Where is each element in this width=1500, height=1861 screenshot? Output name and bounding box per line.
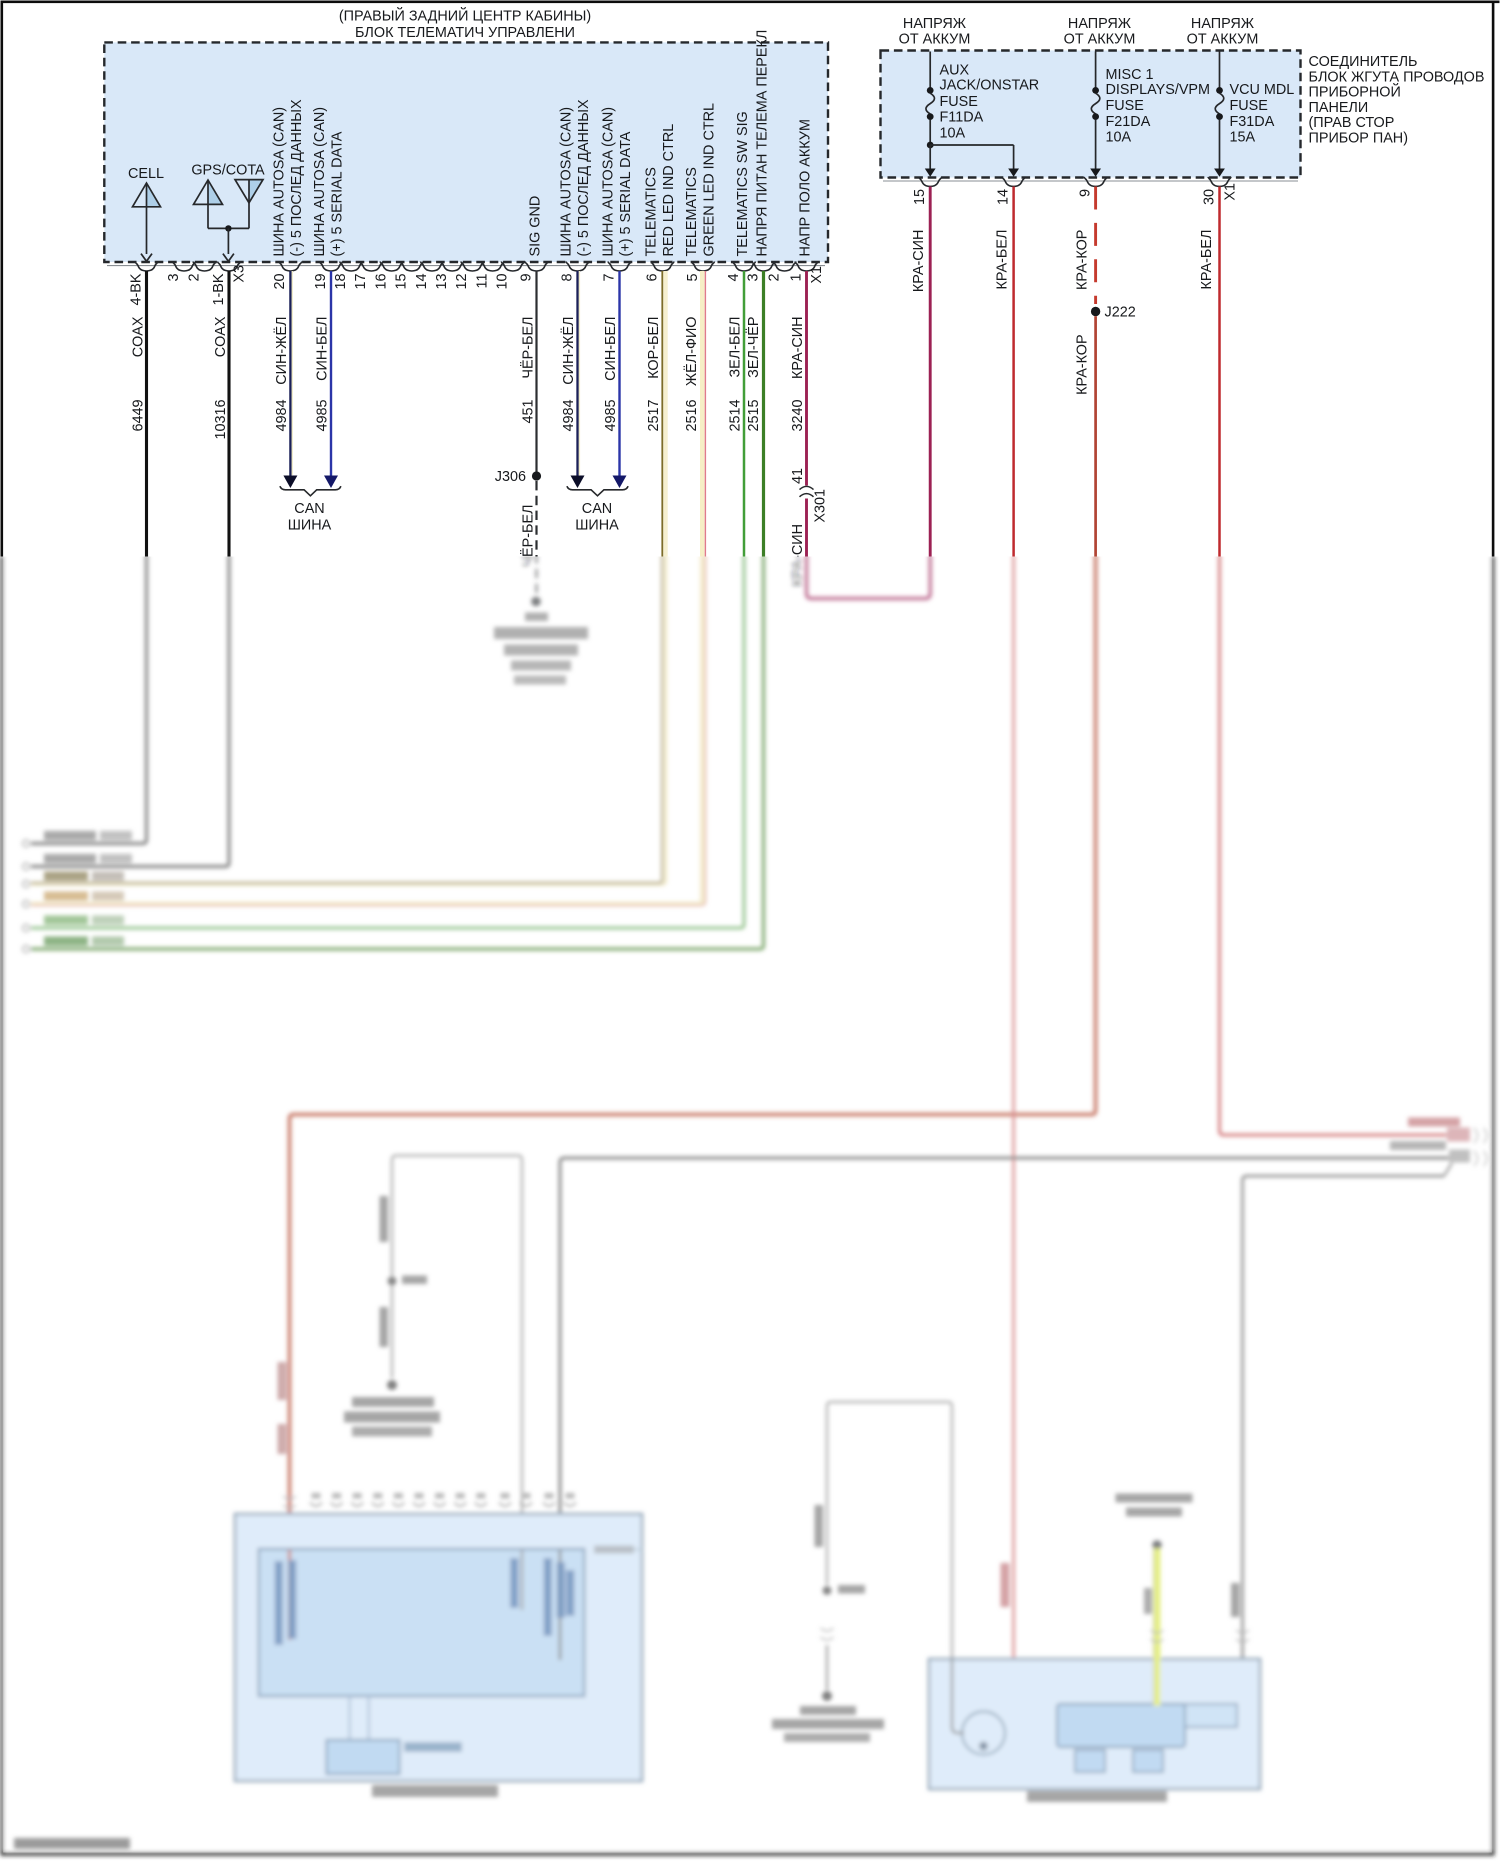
svg-text:(+) 5 SERIAL DATA: (+) 5 SERIAL DATA [618, 131, 634, 256]
svg-text:17: 17 [353, 274, 369, 290]
svg-text:7: 7 [601, 274, 617, 282]
svg-text:X301: X301 [813, 489, 829, 523]
svg-text:16: 16 [373, 274, 389, 290]
svg-text:СИН-ЖЁЛ: СИН-ЖЁЛ [273, 317, 290, 385]
svg-text:4985: 4985 [315, 400, 331, 432]
svg-text:3: 3 [745, 274, 761, 282]
svg-text:НАПР ПОЛО АККУМ: НАПР ПОЛО АККУМ [798, 119, 814, 256]
svg-text:4984: 4984 [561, 400, 577, 432]
svg-text:1-BK: 1-BK [211, 273, 227, 305]
svg-text:FUSE: FUSE [1106, 98, 1144, 114]
svg-text:ШИНА: ШИНА [575, 518, 619, 534]
svg-text:10316: 10316 [213, 400, 229, 440]
svg-text:15A: 15A [1230, 130, 1256, 146]
svg-text:14: 14 [995, 189, 1011, 205]
svg-text:ЗЕЛ-БЕЛ: ЗЕЛ-БЕЛ [728, 317, 744, 378]
svg-text:НАПРЯ ПИТАН ТЕЛЕМА ПЕРЕКЛ: НАПРЯ ПИТАН ТЕЛЕМА ПЕРЕКЛ [755, 30, 771, 257]
svg-text:КРА-КОР: КРА-КОР [1074, 334, 1090, 394]
svg-text:ОТ АККУМ: ОТ АККУМ [899, 31, 971, 47]
svg-text:ЗЕЛ-ЧЁР: ЗЕЛ-ЧЁР [745, 317, 762, 378]
svg-text:(-) 5 ПОСЛЕД ДАННЫХ: (-) 5 ПОСЛЕД ДАННЫХ [576, 99, 592, 256]
svg-text:18: 18 [333, 274, 349, 290]
svg-text:MISC 1: MISC 1 [1106, 67, 1154, 83]
svg-text:TELEMATICS: TELEMATICS [644, 167, 660, 256]
svg-text:X1: X1 [809, 266, 825, 284]
svg-text:(ПРАВЫЙ ЗАДНИЙ ЦЕНТР КАБИНЫ): (ПРАВЫЙ ЗАДНИЙ ЦЕНТР КАБИНЫ) [339, 7, 591, 25]
svg-text:НАПРЯЖ: НАПРЯЖ [903, 16, 967, 32]
svg-text:НАПРЯЖ: НАПРЯЖ [1068, 16, 1132, 32]
svg-text:3240: 3240 [790, 400, 806, 432]
svg-text:ЧЁР-БЕЛ: ЧЁР-БЕЛ [519, 317, 536, 379]
svg-text:451: 451 [520, 400, 536, 424]
svg-text:15: 15 [912, 189, 928, 205]
svg-text:ШИНА AUTOSA (CAN): ШИНА AUTOSA (CAN) [312, 107, 328, 257]
svg-text:CAN: CAN [294, 501, 324, 517]
svg-text:ЖЁЛ-ФИО: ЖЁЛ-ФИО [683, 317, 700, 387]
svg-text:4985: 4985 [603, 400, 619, 432]
svg-text:J222: J222 [1105, 304, 1136, 320]
svg-text:FUSE: FUSE [1230, 98, 1268, 114]
svg-text:(+) 5 SERIAL DATA: (+) 5 SERIAL DATA [330, 131, 346, 256]
svg-text:8: 8 [559, 274, 575, 282]
svg-text:30: 30 [1201, 189, 1217, 205]
svg-text:15: 15 [394, 274, 410, 290]
svg-text:ПРИБОРНОЙ: ПРИБОРНОЙ [1309, 83, 1401, 101]
svg-text:F21DA: F21DA [1106, 114, 1151, 130]
svg-text:4984: 4984 [274, 400, 290, 432]
svg-text:9: 9 [518, 274, 534, 282]
svg-text:FUSE: FUSE [940, 94, 978, 110]
svg-text:2: 2 [186, 274, 202, 282]
svg-text:КРА-СИН: КРА-СИН [790, 317, 806, 380]
svg-text:ПРИБОР ПАН): ПРИБОР ПАН) [1309, 131, 1408, 147]
svg-text:F11DA: F11DA [940, 110, 984, 126]
svg-text:14: 14 [414, 274, 430, 290]
svg-text:COAX: COAX [213, 316, 229, 357]
svg-text:СИН-БЕЛ: СИН-БЕЛ [603, 317, 619, 381]
svg-text:ШИНА: ШИНА [288, 518, 332, 534]
svg-text:GPS/COTA: GPS/COTA [191, 162, 265, 178]
svg-text:DISPLAYS/VPM: DISPLAYS/VPM [1106, 82, 1211, 98]
svg-text:2517: 2517 [646, 400, 662, 432]
svg-text:CAN: CAN [582, 501, 612, 517]
svg-text:CELL: CELL [128, 166, 164, 182]
svg-text:6449: 6449 [130, 400, 146, 432]
svg-text:КРА-КОР: КРА-КОР [1074, 230, 1090, 290]
svg-text:ШИНА AUTOSA (CAN): ШИНА AUTOSA (CAN) [559, 107, 575, 257]
svg-text:БЛОК ЖГУТА ПРОВОДОВ: БЛОК ЖГУТА ПРОВОДОВ [1309, 69, 1485, 85]
svg-text:X1: X1 [1223, 183, 1239, 201]
svg-text:JACK/ONSTAR: JACK/ONSTAR [940, 78, 1040, 94]
svg-text:VCU MDL: VCU MDL [1230, 82, 1295, 98]
svg-text:11: 11 [474, 274, 490, 289]
svg-text:F31DA: F31DA [1230, 114, 1275, 130]
svg-text:КРА-БЕЛ: КРА-БЕЛ [995, 230, 1011, 290]
svg-text:41: 41 [790, 468, 806, 484]
svg-text:СИН-ЖЁЛ: СИН-ЖЁЛ [560, 317, 577, 385]
svg-text:СИН-БЕЛ: СИН-БЕЛ [315, 317, 331, 381]
svg-text:RED LED IND CTRL: RED LED IND CTRL [661, 124, 677, 257]
svg-text:19: 19 [313, 274, 329, 290]
svg-text:4: 4 [726, 274, 742, 282]
svg-text:GREEN LED IND CTRL: GREEN LED IND CTRL [702, 103, 718, 257]
svg-text:СОЕДИНИТЕЛЬ: СОЕДИНИТЕЛЬ [1309, 54, 1418, 70]
svg-text:10A: 10A [940, 125, 966, 141]
svg-text:12: 12 [454, 274, 470, 290]
svg-text:НАПРЯЖ: НАПРЯЖ [1191, 16, 1255, 32]
svg-text:10: 10 [495, 274, 511, 290]
svg-text:9: 9 [1077, 189, 1093, 197]
svg-text:COAX: COAX [130, 316, 146, 357]
svg-text:20: 20 [272, 274, 288, 290]
svg-text:X3: X3 [232, 265, 248, 283]
svg-text:AUX: AUX [940, 63, 970, 79]
svg-text:1: 1 [788, 274, 804, 282]
svg-text:2514: 2514 [728, 400, 744, 432]
svg-text:4-BK: 4-BK [128, 273, 144, 305]
svg-text:ПАНЕЛИ: ПАНЕЛИ [1309, 100, 1369, 116]
svg-text:КРА-СИН: КРА-СИН [911, 230, 927, 293]
svg-text:13: 13 [434, 274, 450, 290]
svg-text:ШИНА AUTOSA (CAN): ШИНА AUTOSA (CAN) [601, 107, 617, 257]
svg-text:2516: 2516 [684, 400, 700, 432]
svg-text:КОР-БЕЛ: КОР-БЕЛ [646, 317, 662, 379]
svg-text:2515: 2515 [746, 400, 762, 432]
svg-text:(ПРАВ СТОР: (ПРАВ СТОР [1309, 115, 1395, 131]
svg-text:3: 3 [166, 274, 182, 282]
svg-text:ОТ АККУМ: ОТ АККУМ [1187, 31, 1259, 47]
svg-text:ШИНА AUTOSA (CAN): ШИНА AUTOSA (CAN) [271, 107, 287, 257]
svg-text:10A: 10A [1106, 130, 1132, 146]
svg-text:SIG GND: SIG GND [528, 196, 544, 257]
svg-text:J306: J306 [495, 469, 526, 485]
svg-text:БЛОК ТЕЛЕМАТИЧ УПРАВЛЕНИ: БЛОК ТЕЛЕМАТИЧ УПРАВЛЕНИ [355, 25, 575, 41]
svg-text:КРА-БЕЛ: КРА-БЕЛ [1199, 230, 1215, 290]
svg-text:5: 5 [685, 274, 701, 282]
svg-text:2: 2 [766, 274, 782, 282]
svg-text:ОТ АККУМ: ОТ АККУМ [1064, 31, 1136, 47]
svg-text:6: 6 [644, 274, 660, 282]
svg-text:(-) 5 ПОСЛЕД ДАННЫХ: (-) 5 ПОСЛЕД ДАННЫХ [289, 99, 305, 256]
svg-text:TELEMATICS SW SIG: TELEMATICS SW SIG [735, 111, 751, 256]
svg-text:TELEMATICS: TELEMATICS [684, 167, 700, 256]
